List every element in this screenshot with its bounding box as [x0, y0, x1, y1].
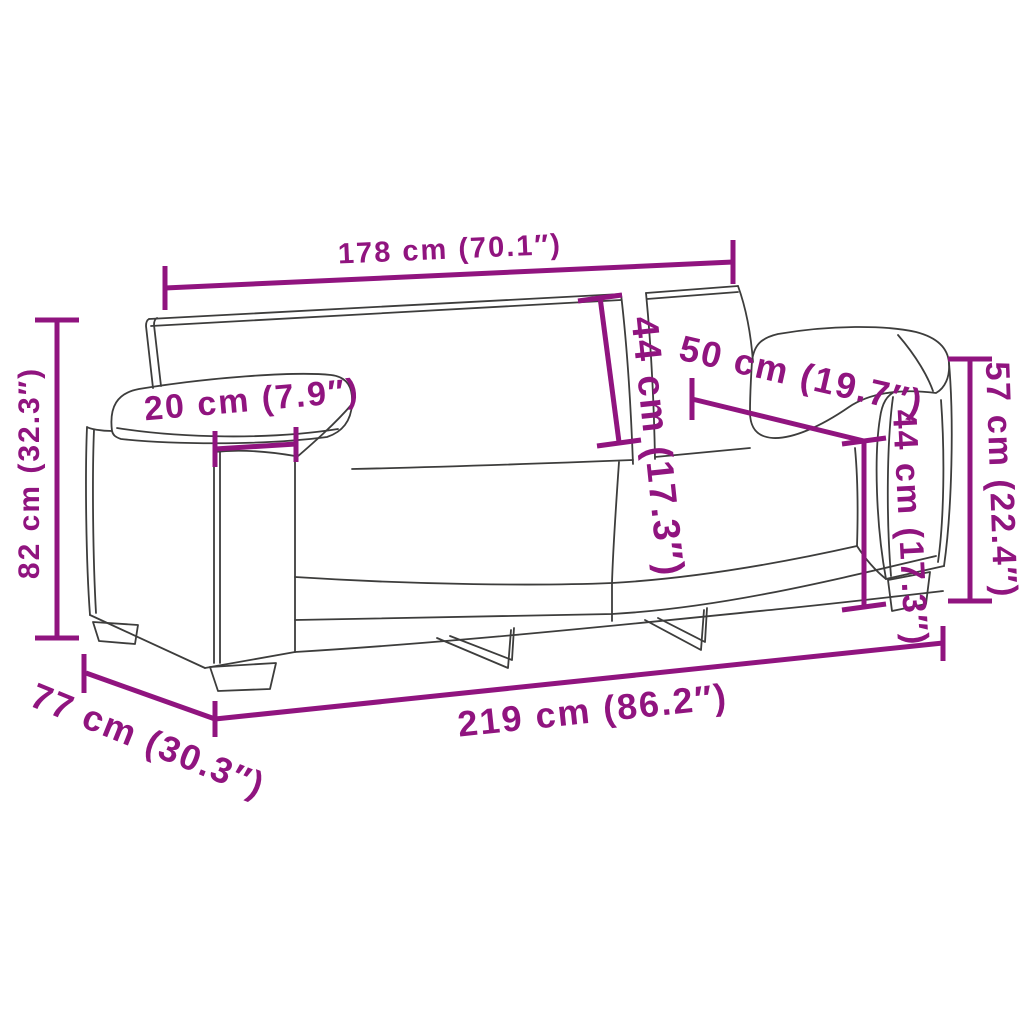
dim-label-bottom-width: 219 cm (86.2″) [456, 675, 730, 744]
dim-label-armrest-width: 20 cm (7.9″) [143, 372, 362, 429]
sofa-line-art [86, 286, 952, 691]
dim-label-left-height: 82 cm (32.3″) [13, 367, 46, 579]
sofa-dimension-diagram: 178 cm (70.1″) 82 cm (32.3″) 20 cm (7.9″… [0, 0, 1024, 1024]
dimension-line [215, 427, 296, 467]
dimension-back-cushion-height: 44 cm (17.3″) [578, 295, 692, 579]
dim-label-top-width: 178 cm (70.1″) [337, 229, 562, 271]
dimension-right-arm-height: 57 cm (22.4″) [948, 359, 1024, 601]
dimension-bottom-width: 219 cm (86.2″) [215, 626, 943, 745]
dim-label-right-arm-height: 57 cm (22.4″) [978, 361, 1024, 599]
dimension-armrest-width: 20 cm (7.9″) [143, 372, 362, 467]
dimension-depth: 77 cm (30.3″) [25, 654, 272, 806]
dim-label-armrest-depth: 50 cm (19.7″) [676, 327, 928, 423]
diagram-canvas: 178 cm (70.1″) 82 cm (32.3″) 20 cm (7.9″… [0, 0, 1024, 1024]
front-left-leg [210, 663, 276, 691]
dimension-left-height: 82 cm (32.3″) [13, 320, 79, 638]
wire-leg-right [645, 610, 704, 650]
side-left-foot [93, 622, 138, 644]
dimension-top-width: 178 cm (70.1″) [165, 229, 733, 310]
seat-and-base [295, 448, 943, 668]
